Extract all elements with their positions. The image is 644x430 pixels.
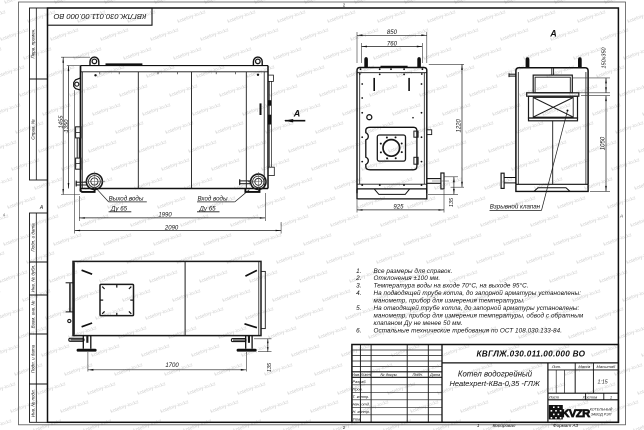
svg-text:Изм.: Изм. [352,372,360,377]
svg-text:760: 760 [387,41,398,47]
svg-text:Дата: Дата [429,372,441,377]
svg-text:1050: 1050 [601,136,607,150]
svg-text:Взам. инв. №: Взам. инв. № [30,300,35,328]
svg-text:850: 850 [387,30,398,36]
svg-text:Нач. отд.: Нач. отд. [353,401,370,406]
svg-text:Утв.: Утв. [353,416,362,421]
svg-text:Листов: Листов [582,394,598,399]
svg-text:Температура воды на входе 70°С: Температура воды на входе 70°С, на выход… [374,282,529,290]
svg-text:манометр, прибор для измерения: манометр, прибор для измерения температу… [374,311,584,319]
svg-text:А: А [39,205,44,211]
svg-text:КВГЛЖ.030.011.00.000 ВО: КВГЛЖ.030.011.00.000 ВО [53,12,146,21]
svg-text:№ докум.: № докум. [380,372,397,377]
svg-text:манометр, прибор для измерения: манометр, прибор для измерения температу… [374,297,525,305]
svg-text:Копировал: Копировал [493,423,516,428]
svg-text:А: А [619,214,623,219]
svg-text:Масса: Масса [578,364,591,369]
svg-text:Масштаб: Масштаб [597,364,616,369]
svg-text:5.: 5. [356,305,361,312]
svg-text:А: А [549,28,557,38]
svg-text:Все размеры для справок.: Все размеры для справок. [374,267,453,275]
svg-text:Перв. примен.: Перв. примен. [30,29,35,59]
svg-text:135: 135 [449,197,455,207]
svg-text:Разраб.: Разраб. [353,379,367,384]
svg-text:150х350: 150х350 [601,46,607,68]
svg-text:Выход воды: Выход воды [109,195,144,202]
svg-text:Котел водогрейный: Котел водогрейный [458,369,533,378]
svg-text:На отводящей трубе котла, до з: На отводящей трубе котла, до запорной ар… [374,304,580,312]
svg-text:1: 1 [610,394,612,399]
svg-text:КОТЕЛЬНЫЙ: КОТЕЛЬНЫЙ [590,407,613,411]
svg-text:Остальные технические требован: Остальные технические требования по ОСТ … [374,326,563,334]
svg-text:Heatexpert-КВа-0,35 -ГЛЖ: Heatexpert-КВа-0,35 -ГЛЖ [449,379,540,388]
svg-text:клапаном Ду не менее 50 мм.: клапаном Ду не менее 50 мм. [374,320,463,327]
svg-text:Инв. № дубл.: Инв. № дубл. [30,265,35,293]
svg-text:4.: 4. [356,290,361,297]
svg-text:1: 1 [477,423,480,428]
svg-text:1.: 1. [356,268,361,275]
svg-text:Инв. № подл.: Инв. № подл. [30,389,35,417]
svg-text:Формат А3: Формат А3 [553,423,579,428]
svg-text:2.: 2. [355,275,361,282]
svg-text:Пров.: Пров. [353,386,363,391]
svg-text:1220: 1220 [457,118,463,132]
svg-text:Лит.: Лит. [551,364,561,369]
svg-text:Лист: Лист [360,372,372,377]
svg-text:Отклонения ±100 мм.: Отклонения ±100 мм. [374,275,441,282]
svg-text:1700: 1700 [165,363,179,369]
svg-text:Справ. №: Справ. № [30,119,35,140]
svg-text:135: 135 [267,362,273,372]
svg-text:ЗАВОД РЭП: ЗАВОД РЭП [591,412,612,416]
svg-text:3.: 3. [356,283,361,290]
svg-text:925: 925 [393,205,404,211]
svg-text:1990: 1990 [158,213,172,219]
svg-text:Н. контр.: Н. контр. [353,409,371,414]
svg-text:Взрывной клапан: Взрывной клапан [490,204,541,211]
svg-text:6.: 6. [356,327,361,334]
svg-text:Лист: Лист [548,394,560,399]
svg-text:Т. контр.: Т. контр. [353,394,370,399]
svg-text:Подп. и дата: Подп. и дата [30,223,35,252]
svg-text:На подводящей трубе котла, до: На подводящей трубе котла, до запорной а… [374,289,582,297]
svg-text:2090: 2090 [164,225,179,231]
svg-text:Вход воды: Вход воды [198,195,228,202]
svg-text:Подп.: Подп. [413,372,423,377]
svg-text:КВГЛЖ.030.011.00.000 ВО: КВГЛЖ.030.011.00.000 ВО [476,349,585,358]
svg-text:1350: 1350 [64,119,70,133]
svg-text:А: А [293,108,301,118]
svg-text:KVZR: KVZR [561,408,590,420]
svg-text:Подп. и дата: Подп. и дата [30,344,35,373]
svg-text:1:15: 1:15 [598,379,608,385]
